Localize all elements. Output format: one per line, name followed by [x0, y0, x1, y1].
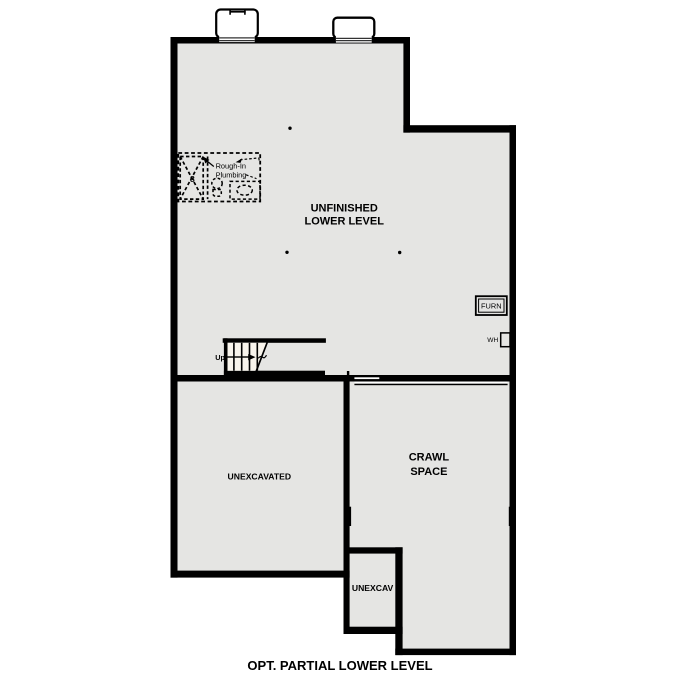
svg-text:Rough-In: Rough-In [216, 162, 246, 171]
svg-text:8: 8 [190, 174, 195, 184]
svg-text:UNEXCAVATED: UNEXCAVATED [228, 471, 292, 481]
svg-text:WH: WH [487, 337, 498, 344]
svg-text:FURN: FURN [481, 302, 502, 311]
svg-text:UNFINISHED: UNFINISHED [311, 202, 378, 214]
svg-text:LOWER LEVEL: LOWER LEVEL [304, 216, 384, 228]
svg-text:Up: Up [215, 353, 225, 362]
svg-text:CRAWL: CRAWL [409, 451, 450, 463]
svg-text:OPT. PARTIAL LOWER LEVEL: OPT. PARTIAL LOWER LEVEL [247, 658, 432, 673]
svg-text:Plumbing: Plumbing [216, 171, 247, 180]
svg-text:UNEXCAV: UNEXCAV [352, 583, 394, 593]
svg-text:SPACE: SPACE [410, 466, 447, 478]
